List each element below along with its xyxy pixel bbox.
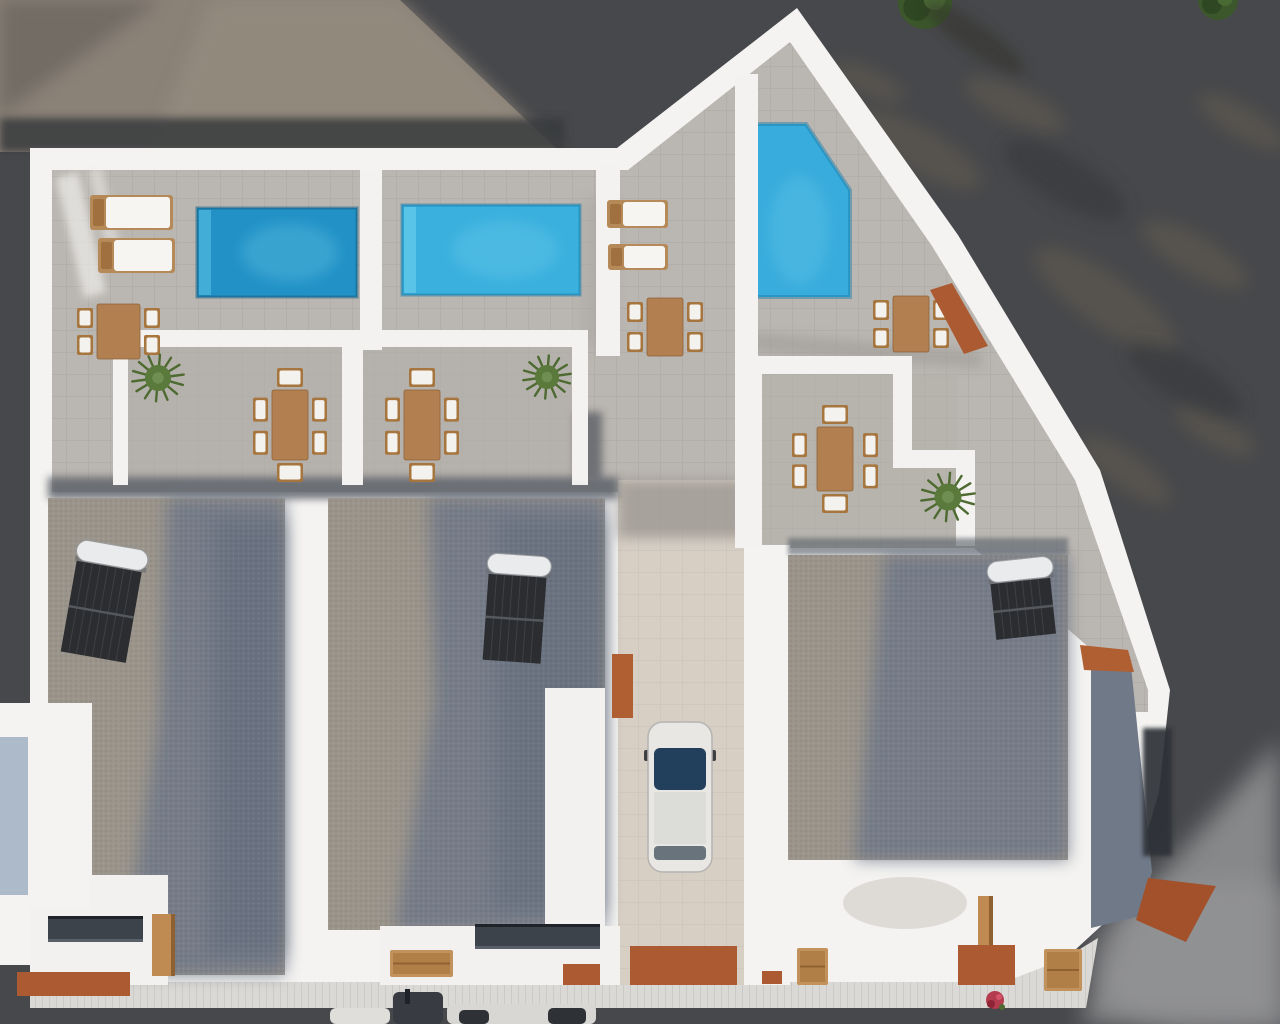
lounger-headrest (610, 204, 621, 224)
table-top (97, 304, 140, 359)
shadow-band (0, 118, 565, 152)
lounger-cushion (106, 197, 170, 228)
lounger-headrest (93, 199, 104, 226)
parked-dark-car (1143, 728, 1172, 856)
pool-1 (197, 208, 357, 297)
layer-roofs (0, 498, 1152, 985)
street-car-dark (393, 989, 443, 1024)
window-glass (48, 916, 143, 942)
table-top (404, 390, 440, 460)
sun-lounger (608, 244, 668, 270)
facade-window-2 (475, 924, 600, 949)
roof-2-side-terrace (545, 688, 605, 930)
patio-2-wall-right (572, 336, 588, 485)
table-top (893, 296, 929, 352)
car-body (393, 992, 443, 1024)
lounger-cushion (114, 240, 172, 271)
terracotta-edge (612, 654, 633, 718)
solar-water-heater-2 (481, 553, 552, 664)
lounger-headrest (101, 242, 112, 269)
roof-3-shadow-gap (788, 538, 1068, 555)
terracotta-paving (630, 946, 737, 985)
window-glass (475, 924, 600, 949)
lounger-cushion (623, 202, 665, 226)
pool-step (199, 210, 211, 295)
patio-3-wall-left (742, 356, 762, 546)
driveway-shadow (618, 480, 746, 538)
wood-bench (797, 948, 828, 985)
car-in-driveway (644, 722, 716, 872)
terrace-shadow-gap (48, 477, 618, 499)
architectural-rendering (0, 0, 1280, 1024)
wood-bench (1044, 949, 1082, 991)
table-top (817, 427, 853, 491)
rear-window (654, 846, 706, 860)
windshield (654, 748, 706, 790)
sun-lounger (98, 238, 175, 273)
pool-2 (402, 205, 580, 295)
pool-step (404, 207, 416, 293)
lounger-headrest (611, 248, 622, 266)
wood-bench (390, 950, 453, 977)
patio-shared-wall (342, 330, 363, 485)
wood-post (152, 914, 175, 976)
patio-3-wall-right-upper (893, 356, 912, 462)
entry-curved-step (843, 877, 967, 929)
terracotta-paving (762, 971, 782, 984)
car-body (330, 1008, 390, 1024)
scene-layers (0, 0, 1280, 1024)
patio-3-wall-top (742, 356, 912, 374)
terracotta-paving (958, 945, 1015, 985)
roof3-side-walkway (744, 545, 790, 985)
sun-lounger (90, 195, 173, 230)
table-top (647, 298, 683, 356)
terracotta-paving (563, 964, 600, 985)
heater-tube (487, 553, 552, 577)
street-car (330, 1008, 390, 1024)
facade-window-1 (48, 916, 143, 942)
lounger-cushion (624, 246, 665, 268)
patio-2-wall-top (342, 330, 588, 347)
table-top (272, 390, 308, 460)
terracotta-paving (17, 972, 130, 996)
scene-stage (0, 0, 1280, 1024)
car-roof (654, 792, 706, 844)
street-car (447, 1004, 596, 1024)
sun-lounger (607, 200, 668, 228)
divider-wall-1 (360, 170, 382, 350)
bay-skylight (0, 737, 28, 895)
solar-water-heater-3 (986, 556, 1060, 640)
